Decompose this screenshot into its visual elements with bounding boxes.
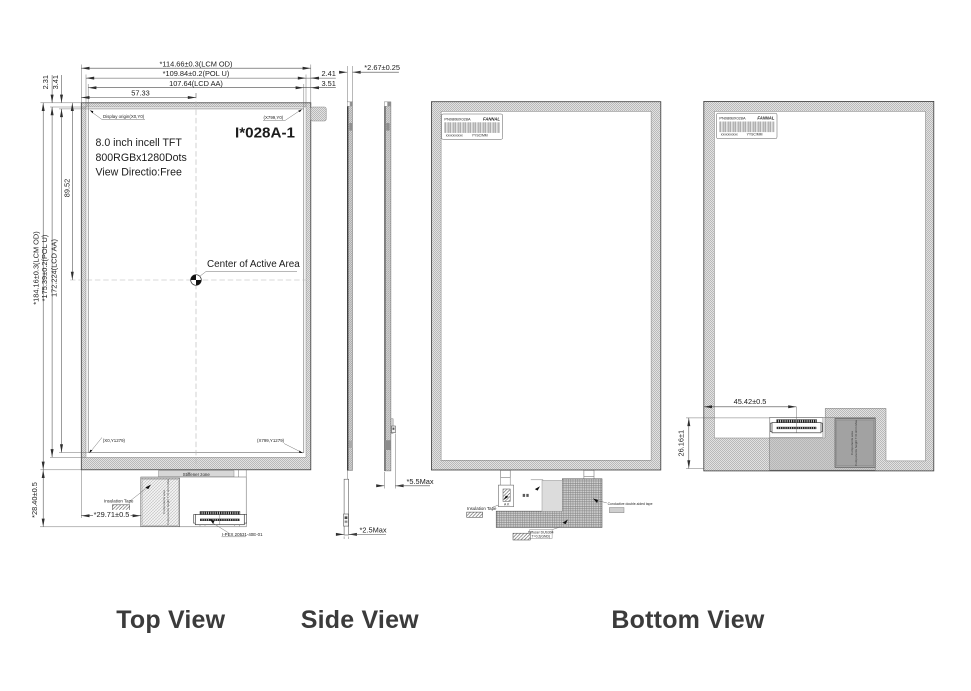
svg-text:Conductive double-sided tape: Conductive double-sided tape [608, 502, 653, 506]
svg-text:*109.84±0.2(POL U): *109.84±0.2(POL U) [163, 69, 230, 78]
svg-text:*2.67±0.25: *2.67±0.25 [364, 63, 400, 72]
svg-text:*2.5Max: *2.5Max [360, 525, 387, 534]
svg-text:*28.40±0.5: *28.40±0.5 [30, 482, 39, 518]
svg-text:I*028A-1: I*028A-1 [235, 125, 295, 142]
svg-text:Side View: Side View [301, 606, 419, 634]
svg-text:107.64(LCD AA): 107.64(LCD AA) [169, 79, 223, 88]
svg-text:FANNAL: FANNAL [483, 117, 500, 122]
svg-text:3.41: 3.41 [51, 75, 60, 89]
svg-text:2.31: 2.31 [41, 75, 50, 89]
svg-text:Top View: Top View [116, 606, 225, 634]
svg-text:Stiffener zone: Stiffener zone [183, 472, 211, 477]
svg-text:xxxxxxxxxx: xxxxxxxxxx [446, 133, 463, 137]
svg-text:Components height T=0.3mm Max: Components height T=0.3mm Max [166, 478, 170, 525]
svg-text:2.41: 2.41 [322, 69, 336, 78]
svg-text:Components height T=0.3mm Max: Components height T=0.3mm Max [854, 419, 858, 466]
svg-text:*5.5Max: *5.5Max [407, 477, 434, 486]
svg-text:YYSC!MM: YYSC!MM [472, 133, 488, 137]
svg-text:xxxxxxxxxx: xxxxxxxxxx [721, 133, 738, 137]
svg-text:(X799,Y1279): (X799,Y1279) [257, 438, 285, 443]
svg-text:*114.66±0.3(LCM OD): *114.66±0.3(LCM OD) [160, 59, 233, 68]
svg-text:172.224(LCD AA): 172.224(LCD AA) [49, 239, 58, 297]
svg-text:3.51: 3.51 [322, 79, 336, 88]
svg-text:Display origin(X0,Y0): Display origin(X0,Y0) [103, 114, 145, 119]
svg-text:A K: A K [504, 502, 510, 506]
svg-text:I-PEX 20531-40E-01: I-PEX 20531-40E-01 [222, 532, 263, 537]
svg-text:(X799,Y0): (X799,Y0) [264, 115, 284, 120]
svg-text:*29.71±0.5: *29.71±0.5 [94, 510, 130, 519]
svg-text:Bottom View: Bottom View [611, 606, 764, 634]
svg-text:PN080BX028A: PN080BX028A [444, 116, 471, 121]
svg-text:View Directio:Free: View Directio:Free [96, 167, 182, 179]
svg-text:*175.39±0.2(POL U): *175.39±0.2(POL U) [40, 235, 49, 302]
svg-text:89.52: 89.52 [62, 179, 71, 198]
svg-text:Insulation Tape: Insulation Tape [467, 506, 497, 511]
svg-text:PN080BX028A: PN080BX028A [719, 116, 746, 121]
svg-text:Center of Active Area: Center of Active Area [207, 259, 300, 270]
svg-text:YYSC!MM: YYSC!MM [747, 133, 763, 137]
svg-text:(X0,Y1279): (X0,Y1279) [103, 438, 126, 443]
svg-text:T=0.2(GND): T=0.2(GND) [532, 534, 551, 538]
svg-text:800RGBx1280Dots: 800RGBx1280Dots [96, 152, 187, 164]
svg-text:FANNAL: FANNAL [757, 116, 774, 121]
svg-text:26.16±1: 26.16±1 [677, 430, 686, 457]
svg-text:8.0 inch incell TFT: 8.0 inch incell TFT [96, 137, 183, 149]
svg-text:Insulation Tape: Insulation Tape [104, 499, 134, 504]
svg-text:45.42±0.5: 45.42±0.5 [734, 397, 767, 406]
svg-text:57.33: 57.33 [131, 89, 150, 98]
